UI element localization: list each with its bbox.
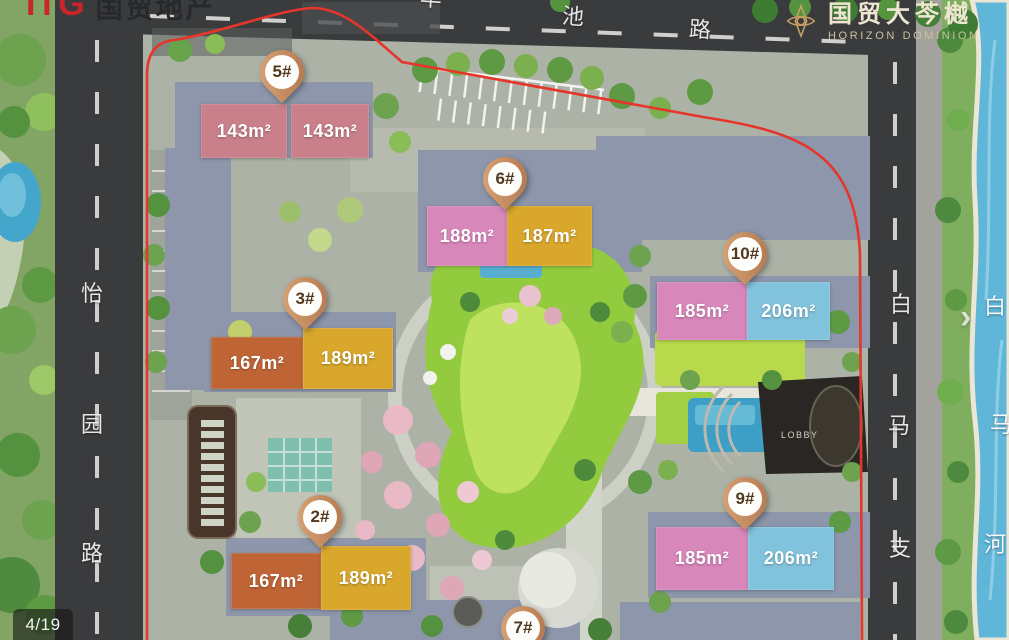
project-name-cn: 国贸大芩樾 [828,2,980,27]
river-label-bai: 白 [984,296,1006,318]
road-label-left-yi: 怡 [81,283,103,305]
unit-area-2-right: 189m² [321,546,411,610]
unit-area-3-right: 189m² [303,328,393,389]
building-pin-3: 3# [281,275,329,337]
building-pin-6: 6# [481,155,529,217]
building-pin-9: 9# [721,475,769,537]
building-pin-10: 10# [721,230,769,292]
road-label-top-chi: 池 [561,5,584,28]
project-logo: 国贸大芩樾 HORIZON DOMINION [782,2,980,42]
road-label-right-ma: 马 [888,415,910,437]
road-label-top-lu: 路 [688,18,711,41]
road-label-left-yuan: 园 [81,414,103,436]
itg-logo-text: ITG [26,0,86,24]
image-counter: 4/19 [13,609,73,640]
unit-area-5-right: 143m² [291,104,369,158]
site-plan-art [0,0,1009,640]
site-plan-image[interactable]: ITG 国贸地产 国贸大芩樾 HORIZON DOMINION 丰 池 路 怡 … [0,0,1009,640]
river-label-he: 河 [984,534,1006,556]
road-label-right-zhi: 支 [889,538,911,560]
unit-area-3-left: 167m² [211,337,303,389]
developer-name: 国贸地产 [96,0,216,26]
river-label-ma: 马 [990,414,1009,436]
unit-area-5-left: 143m² [201,104,287,158]
building-pin-7: 7# [499,604,547,640]
next-image-arrow[interactable]: › [960,300,971,334]
building-pin-5: 5# [258,48,306,110]
unit-area-2-left: 167m² [231,553,321,609]
road-label-right-bai: 白 [890,294,912,316]
building-pin-2: 2# [296,493,344,555]
road-label-top-partial: 丰 [419,0,442,11]
lobby-label: LOBBY [781,430,819,440]
road-label-left-lu: 路 [81,543,103,565]
developer-logo: ITG 国贸地产 [26,0,216,24]
project-name-en: HORIZON DOMINION [828,30,980,42]
project-emblem-icon [782,2,820,40]
